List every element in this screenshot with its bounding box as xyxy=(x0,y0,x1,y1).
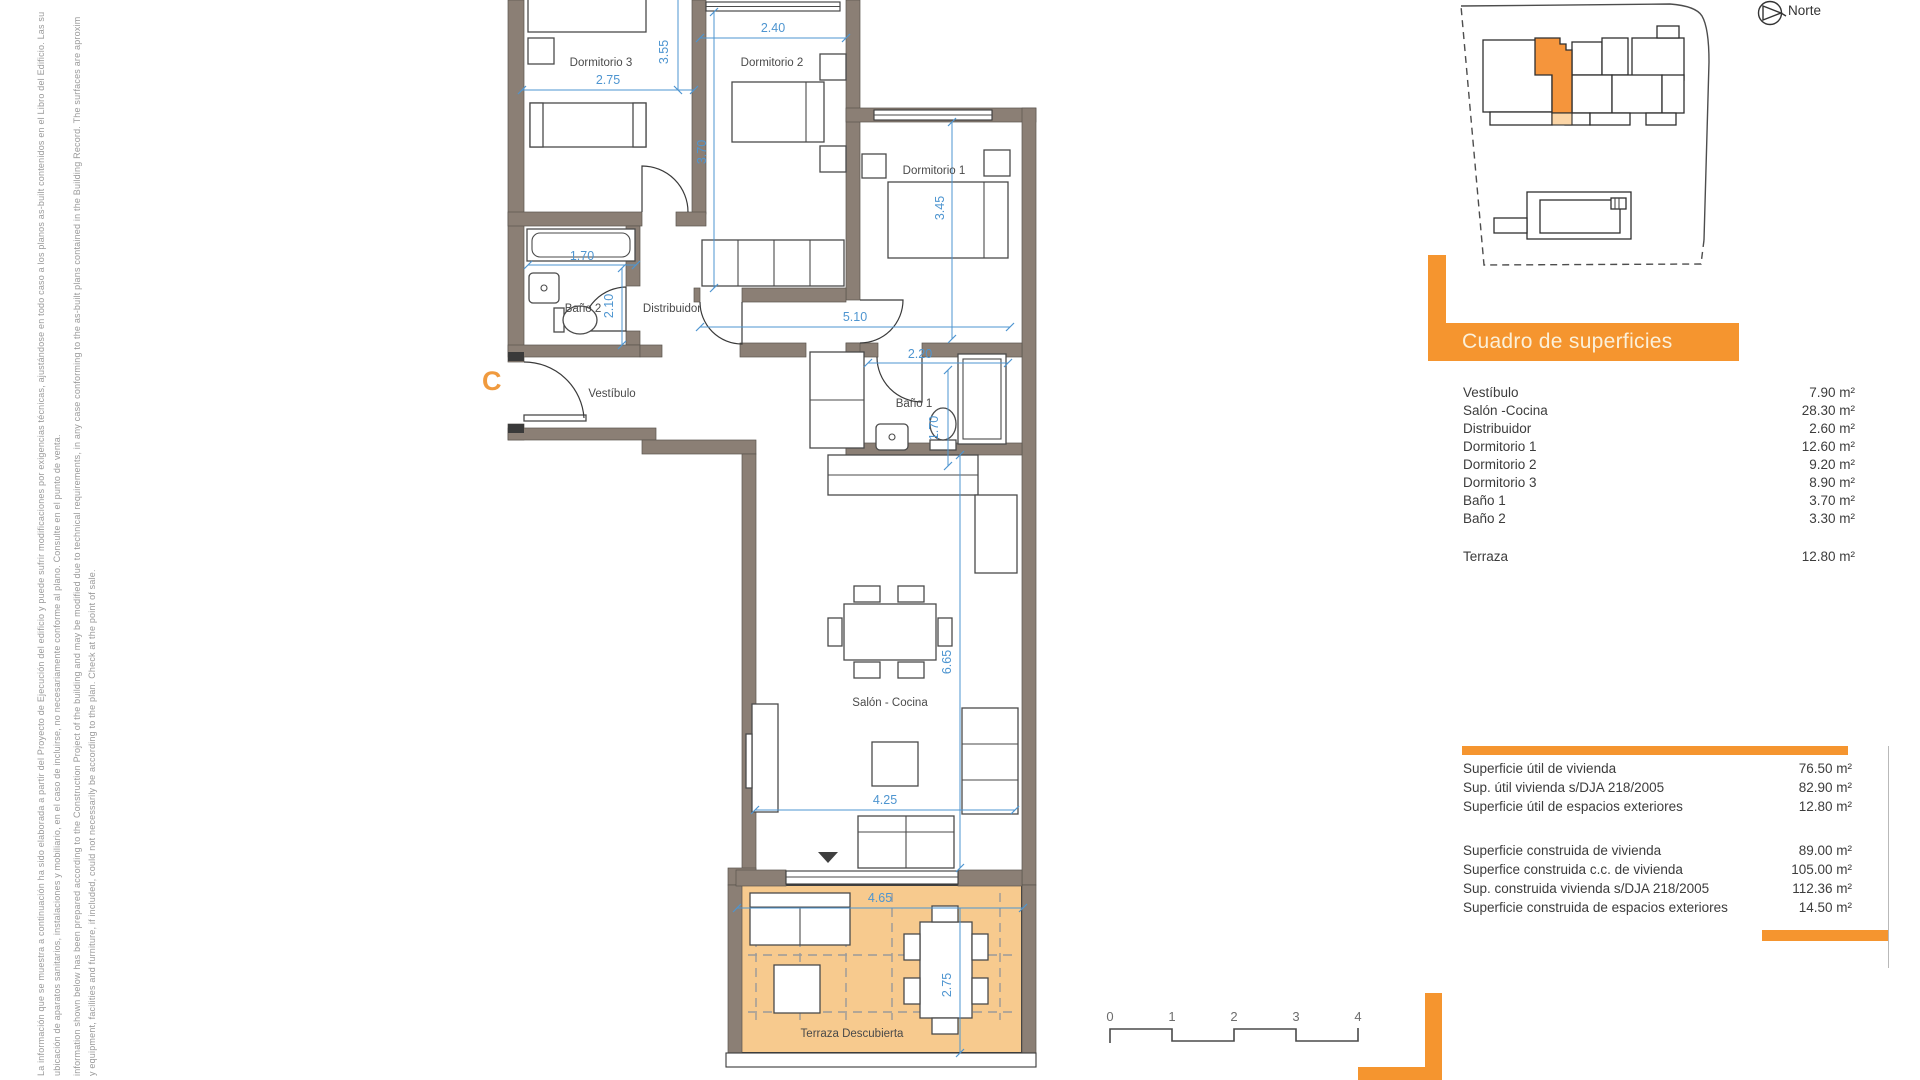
totals-construida-row: Sup. construida vivienda s/DJA 218/20051… xyxy=(1463,881,1852,899)
dim-2-40: 2.40 xyxy=(761,21,785,35)
dim-2-20: 2.20 xyxy=(908,347,932,361)
totals-util-row: Superficie útil de espacios exteriores12… xyxy=(1463,799,1852,817)
coffee-table xyxy=(872,742,918,786)
surface-row: Dormitorio 112.60 m² xyxy=(1463,439,1855,457)
dim-3-45: 3.45 xyxy=(933,196,947,220)
label-bano-2: Baño 2 xyxy=(565,303,601,315)
entrance-door-arc xyxy=(524,362,584,418)
drawing-canvas: 2.75 3.55 2.40 3.70 3.45 1.70 2.10 5.10 … xyxy=(0,0,1920,1080)
dim-4-25: 4.25 xyxy=(873,793,897,807)
accent-l-vertical xyxy=(1425,993,1442,1080)
scale-tick-3: 3 xyxy=(1292,1009,1299,1024)
entrance-door-leaf xyxy=(524,415,586,421)
dim-3-55: 3.55 xyxy=(657,40,671,64)
bano1-door xyxy=(877,357,922,402)
label-dormitorio-2: Dormitorio 2 xyxy=(741,57,804,69)
totals-util-row: Superficie útil de vivienda76.50 m² xyxy=(1463,761,1852,779)
dim-4-65: 4.65 xyxy=(868,891,892,905)
totals-accent-bar-top xyxy=(1462,746,1848,755)
sofa xyxy=(962,708,1018,814)
label-bano-1: Baño 1 xyxy=(896,398,932,410)
dim-6-65: 6.65 xyxy=(940,650,954,674)
dim-2-10: 2.10 xyxy=(602,294,616,318)
surface-row: Salón -Cocina28.30 m² xyxy=(1463,403,1855,421)
scale-tick-1: 1 xyxy=(1168,1009,1175,1024)
dim-3-70: 3.70 xyxy=(695,140,709,164)
totals-side-line xyxy=(1888,746,1889,968)
surface-row: Dormitorio 29.20 m² xyxy=(1463,457,1855,475)
accent-l-horizontal xyxy=(1358,1067,1425,1080)
totals-util-row: Sup. útil vivienda s/DJA 218/200582.90 m… xyxy=(1463,780,1852,798)
label-salon-cocina: Salón - Cocina xyxy=(852,697,928,709)
surfaces-title: Cuadro de superficies xyxy=(1428,330,1673,354)
surface-row: Dormitorio 38.90 m² xyxy=(1463,475,1855,493)
terrace-table xyxy=(920,922,972,1018)
north-arrow-icon xyxy=(1759,2,1787,25)
label-terraza: Terraza Descubierta xyxy=(801,1028,905,1040)
surface-row: Distribuidor2.60 m² xyxy=(1463,421,1855,439)
wardrobe xyxy=(810,352,864,448)
dim-1-70-a: 1.70 xyxy=(570,249,594,263)
totals-construida-row: Superfice construida c.c. de vivienda105… xyxy=(1463,862,1852,880)
dim-5-10: 5.10 xyxy=(843,310,867,324)
scale-tick-0: 0 xyxy=(1106,1009,1113,1024)
site-pool-building xyxy=(1494,192,1631,239)
floor-plan: 2.75 3.55 2.40 3.70 3.45 1.70 2.10 5.10 … xyxy=(508,0,1036,1067)
site-plan xyxy=(1461,4,1709,265)
terrace-parapet xyxy=(726,1053,1036,1067)
label-vestibulo: Vestíbulo xyxy=(588,388,635,400)
highlighted-unit-terrace xyxy=(1552,113,1572,125)
surface-row: Baño 23.30 m² xyxy=(1463,511,1855,529)
tv-unit xyxy=(752,704,778,812)
scale-tick-4: 4 xyxy=(1354,1009,1361,1024)
terrace-table-small xyxy=(774,965,820,1013)
surface-row-terraza: Terraza12.80 m² xyxy=(1463,549,1855,567)
dorm3-furniture xyxy=(528,0,646,147)
north-label: Norte xyxy=(1788,3,1821,18)
entry-arrow-icon xyxy=(818,852,838,863)
kitchen-counter xyxy=(828,455,1017,573)
label-dormitorio-1: Dormitorio 1 xyxy=(903,165,966,177)
label-distribuidor: Distribuidor xyxy=(643,303,701,315)
surfaces-header: Cuadro de superficies xyxy=(1428,323,1739,361)
scale-tick-2: 2 xyxy=(1230,1009,1237,1024)
scale-bar: 0 1 2 3 4 xyxy=(1106,1009,1361,1043)
dim-2-75: 2.75 xyxy=(596,73,620,87)
surface-row: Vestíbulo7.90 m² xyxy=(1463,385,1855,403)
totals-construida-row: Superficie construida de espacios exteri… xyxy=(1463,900,1852,918)
site-building xyxy=(1483,26,1684,125)
salon-furniture xyxy=(746,586,1018,868)
bano2-furniture xyxy=(527,229,635,334)
panel-accent-bar-top xyxy=(1428,255,1446,325)
dim-1-70-b: 1.70 xyxy=(927,416,941,440)
entrance-jamb-top xyxy=(508,352,524,361)
surface-row: Baño 13.70 m² xyxy=(1463,493,1855,511)
totals-accent-bar-bottom xyxy=(1762,930,1888,941)
dim-2-75-b: 2.75 xyxy=(940,973,954,997)
dorm2-furniture xyxy=(702,54,846,286)
dorm3-door xyxy=(642,166,688,212)
entrance-jamb-bottom xyxy=(508,424,524,433)
totals-construida-row: Superficie construida de vivienda89.00 m… xyxy=(1463,843,1852,861)
dorm2-door xyxy=(700,302,742,344)
label-dormitorio-3: Dormitorio 3 xyxy=(570,57,633,69)
